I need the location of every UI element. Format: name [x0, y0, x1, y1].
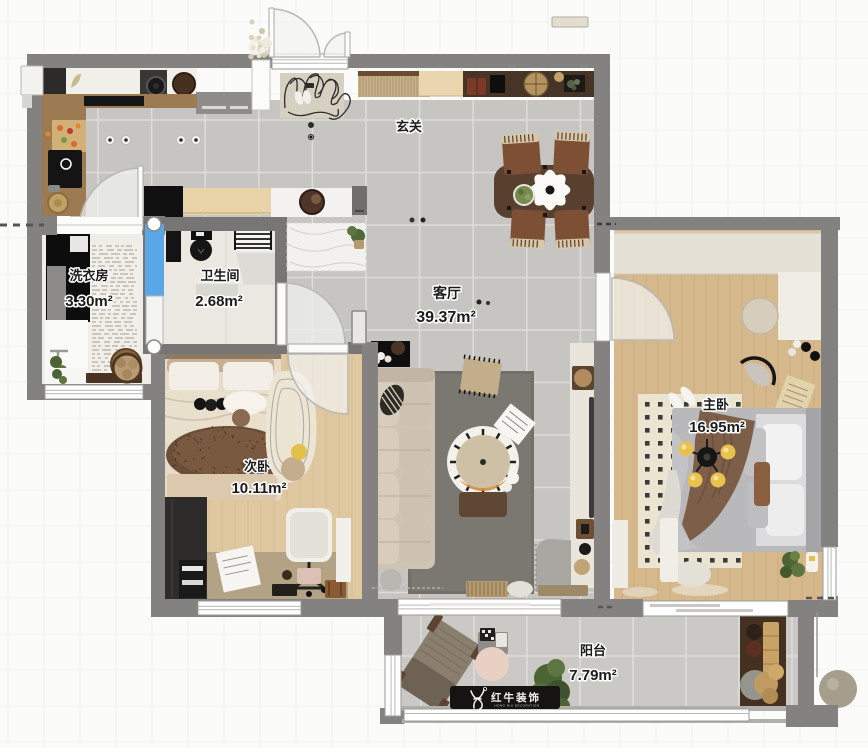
svg-text:主卧: 主卧 [703, 397, 729, 412]
svg-text:客厅: 客厅 [432, 285, 461, 301]
svg-text:HONG NIU DECORATION: HONG NIU DECORATION [494, 704, 539, 708]
svg-text:玄关: 玄关 [396, 119, 422, 134]
svg-text:阳台: 阳台 [580, 643, 606, 658]
svg-text:卫生间: 卫生间 [200, 268, 239, 283]
svg-text:洗衣房: 洗衣房 [69, 268, 108, 283]
svg-text:10.11m²: 10.11m² [231, 480, 286, 497]
svg-text:16.95m²: 16.95m² [689, 419, 745, 436]
svg-text:2.68m²: 2.68m² [195, 293, 243, 310]
svg-text:3.30m²: 3.30m² [65, 293, 113, 310]
svg-text:红牛装饰: 红牛装饰 [491, 691, 541, 704]
svg-text:次卧: 次卧 [244, 459, 270, 474]
svg-text:7.79m²: 7.79m² [569, 667, 617, 684]
svg-text:39.37m²: 39.37m² [416, 309, 476, 326]
